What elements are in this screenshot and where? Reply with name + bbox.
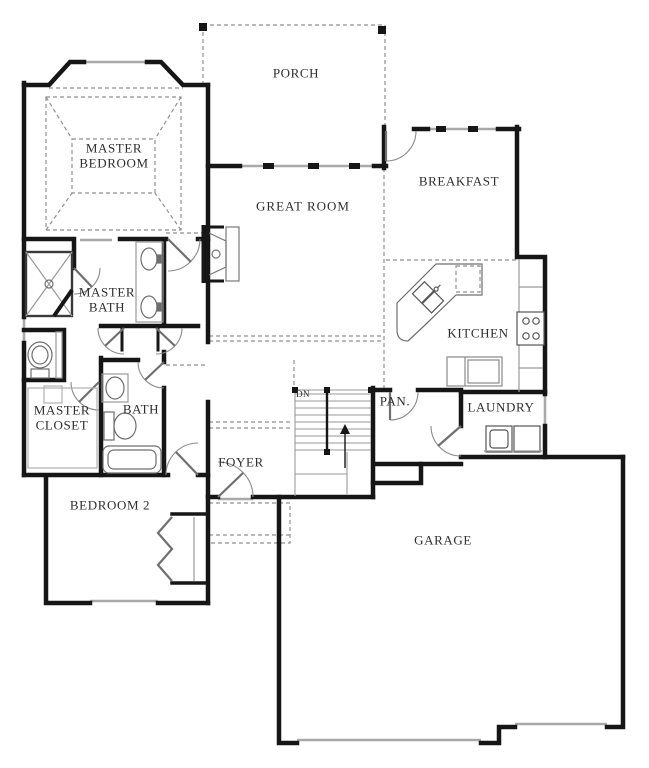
washer-dryer bbox=[484, 426, 542, 452]
room-label-porch: PORCH bbox=[273, 67, 319, 82]
linen-dividers bbox=[122, 326, 158, 350]
staircase bbox=[292, 387, 374, 496]
refrigerator bbox=[447, 357, 502, 386]
floor-plan-sheet: PORCH MASTER BEDROOM GREAT ROOM BREAKFAS… bbox=[0, 0, 649, 768]
stairs-down-label: DN bbox=[296, 389, 310, 399]
porch-post-right bbox=[378, 26, 386, 34]
bifold-closet-door bbox=[158, 517, 172, 581]
room-label-bedroom-2: BEDROOM 2 bbox=[70, 499, 150, 514]
room-label-pantry: PAN. bbox=[380, 395, 410, 410]
porch-post-left bbox=[199, 23, 207, 31]
room-label-foyer: FOYER bbox=[218, 456, 264, 471]
firebox-flue bbox=[212, 250, 220, 258]
bathtub bbox=[103, 446, 161, 473]
window-mullions-and-posts bbox=[199, 23, 478, 169]
room-label-kitchen: KITCHEN bbox=[447, 327, 508, 342]
mud-hall-step-walls bbox=[373, 464, 421, 483]
water-closet-walls bbox=[24, 330, 64, 380]
hearth bbox=[226, 227, 239, 281]
floor-plan-drawing bbox=[0, 0, 649, 768]
room-label-master-bath: MASTER BATH bbox=[71, 285, 143, 314]
room-label-great-room: GREAT ROOM bbox=[256, 200, 350, 215]
room-label-bath: BATH bbox=[123, 403, 159, 418]
foyer-ceiling-dashed bbox=[209, 422, 291, 428]
bedroom2-closet-walls bbox=[172, 514, 208, 583]
breakfast-door-arc bbox=[386, 131, 416, 161]
master-bay-wall bbox=[24, 62, 208, 85]
great-room-south-dashed bbox=[209, 336, 384, 341]
dishwasher-dashed bbox=[456, 266, 480, 292]
shower bbox=[26, 252, 72, 316]
room-label-breakfast: BREAKFAST bbox=[419, 175, 499, 190]
island-double-sink bbox=[412, 275, 449, 312]
room-label-master-bedroom: MASTER BEDROOM bbox=[59, 141, 169, 170]
room-label-garage: GARAGE bbox=[414, 534, 472, 549]
hall-ceiling-dashed bbox=[166, 233, 206, 365]
room-label-laundry: LAUNDRY bbox=[467, 401, 534, 416]
pedestal-sink bbox=[102, 374, 128, 402]
range-cooktop bbox=[517, 312, 544, 345]
garage-walls bbox=[279, 457, 623, 743]
master-toilet bbox=[28, 332, 62, 378]
room-label-master-closet: MASTER CLOSET bbox=[20, 403, 104, 432]
